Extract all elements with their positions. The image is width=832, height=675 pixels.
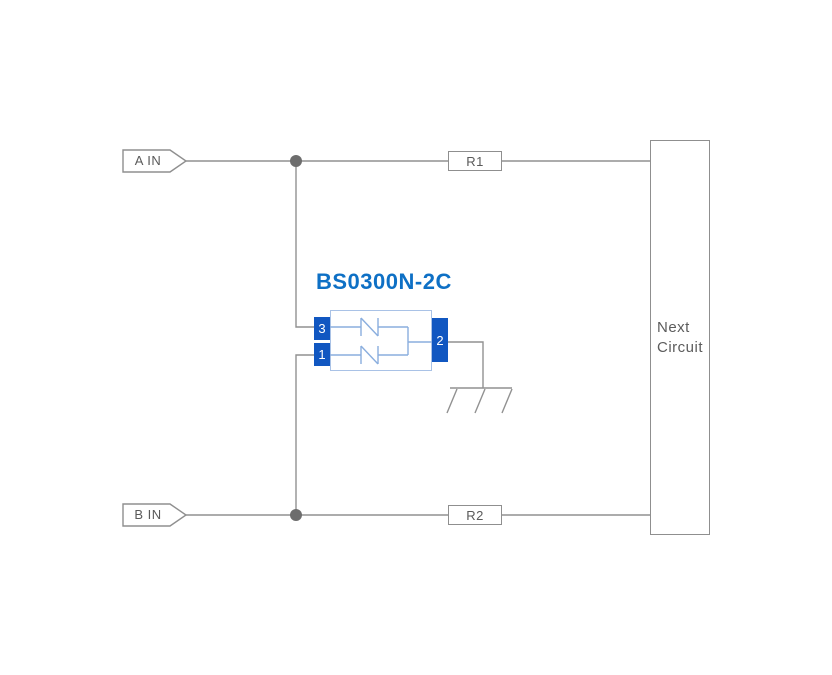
resistor-r2-label: R2 — [466, 508, 484, 523]
branch-a-to-pin3 — [296, 161, 314, 327]
next-circuit-label: Next Circuit — [657, 318, 703, 358]
component-part-number: BS0300N-2C — [316, 269, 452, 295]
component-pin-1: 1 — [314, 343, 330, 366]
schematic-canvas: A IN B IN R1 R2 Next Circuit BS0300N-2C … — [0, 0, 832, 675]
pin-1-label: 1 — [318, 347, 325, 362]
input-tags — [123, 150, 186, 526]
next-circuit-box: Next Circuit — [650, 140, 710, 535]
ground-icon — [447, 388, 512, 413]
junction-dot-a — [290, 155, 302, 167]
component-body — [330, 310, 432, 371]
wire-pin2-to-ground — [448, 342, 483, 388]
ground-hatch-1 — [447, 389, 457, 413]
pin-2-label: 2 — [436, 333, 443, 348]
ground-hatch-3 — [502, 389, 512, 413]
pin-3-label: 3 — [318, 321, 325, 336]
resistor-r1-label: R1 — [466, 154, 484, 169]
resistor-r2: R2 — [448, 505, 502, 525]
branch-b-to-pin1 — [296, 355, 314, 515]
next-circuit-label-line1: Next — [657, 318, 703, 338]
junction-dot-b — [290, 509, 302, 521]
component-pin-3: 3 — [314, 317, 330, 340]
input-b-label: B IN — [123, 504, 173, 526]
component-pin-2: 2 — [432, 318, 448, 362]
resistor-r1: R1 — [448, 151, 502, 171]
input-a-label: A IN — [123, 150, 173, 172]
next-circuit-label-line2: Circuit — [657, 338, 703, 358]
ground-hatch-2 — [475, 389, 485, 413]
